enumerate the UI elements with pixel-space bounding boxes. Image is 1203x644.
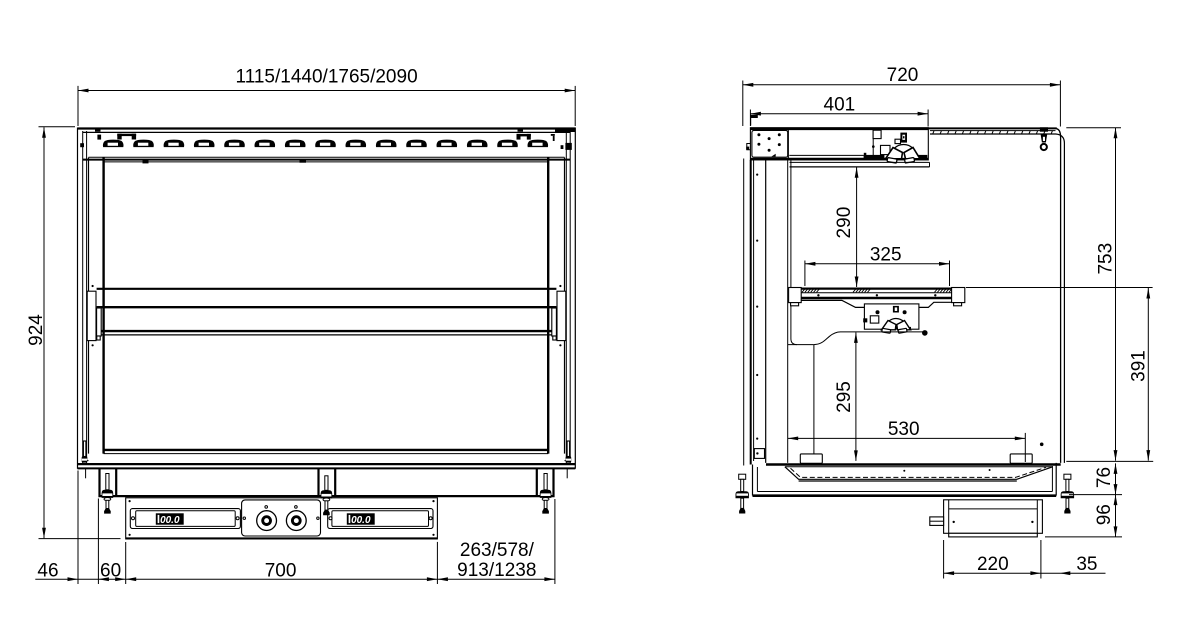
svg-text:00.0: 00.0 <box>160 515 180 526</box>
svg-text:263/578/: 263/578/ <box>460 540 535 561</box>
svg-text:924: 924 <box>26 314 47 346</box>
svg-text:00.0: 00.0 <box>351 515 371 526</box>
svg-text:220: 220 <box>977 554 1009 575</box>
svg-text:46: 46 <box>37 560 58 581</box>
svg-text:295: 295 <box>834 381 855 413</box>
svg-text:35: 35 <box>1076 554 1097 575</box>
svg-text:753: 753 <box>1095 243 1116 275</box>
svg-text:60: 60 <box>100 560 121 581</box>
svg-text:530: 530 <box>888 419 920 440</box>
svg-text:96: 96 <box>1094 504 1115 525</box>
svg-text:1115/1440/1765/2090: 1115/1440/1765/2090 <box>236 66 418 87</box>
svg-text:401: 401 <box>824 95 856 116</box>
svg-text:76: 76 <box>1094 467 1115 488</box>
svg-text:325: 325 <box>870 244 902 265</box>
svg-text:720: 720 <box>887 65 919 86</box>
svg-text:290: 290 <box>834 207 855 239</box>
svg-text:391: 391 <box>1129 350 1150 382</box>
svg-text:700: 700 <box>265 560 297 581</box>
svg-text:913/1238: 913/1238 <box>457 560 536 581</box>
